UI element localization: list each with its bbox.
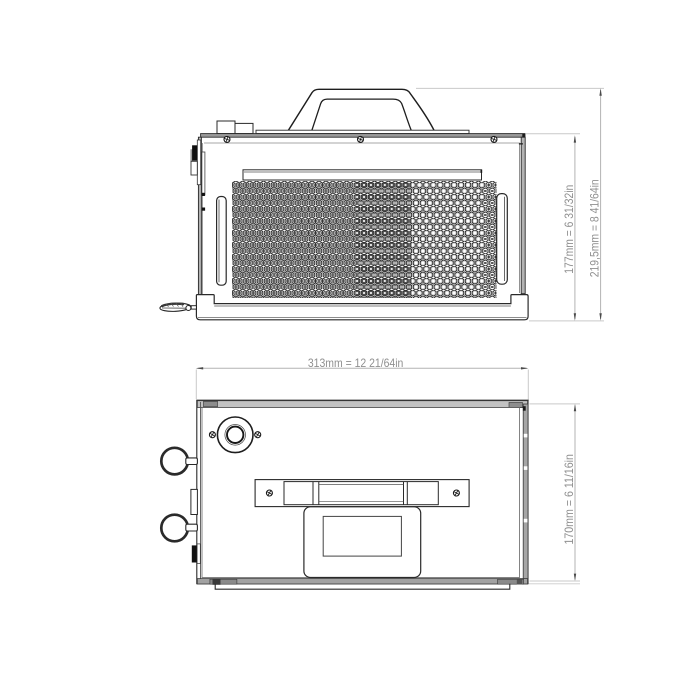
svg-text:313mm = 12 21/64in: 313mm = 12 21/64in [308,356,404,370]
svg-text:170mm = 6 11/16in: 170mm = 6 11/16in [562,454,576,545]
svg-text:219,5mm = 8 41/64in: 219,5mm = 8 41/64in [587,179,601,277]
svg-text:177mm = 6 31/32in: 177mm = 6 31/32in [562,185,576,274]
